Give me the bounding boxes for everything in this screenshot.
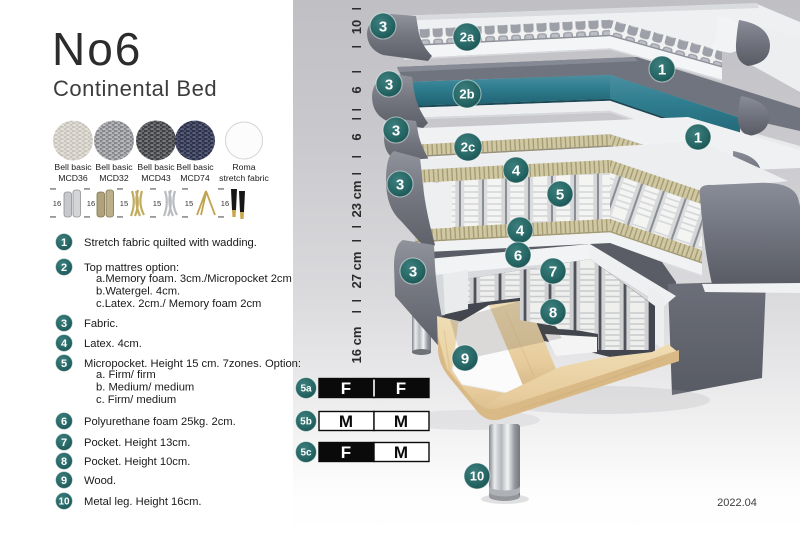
svg-text:8: 8 bbox=[549, 304, 557, 321]
svg-text:16: 16 bbox=[53, 199, 61, 208]
svg-text:16: 16 bbox=[87, 199, 95, 208]
svg-text:3: 3 bbox=[61, 318, 67, 330]
svg-text:F: F bbox=[341, 443, 351, 462]
svg-text:No6: No6 bbox=[52, 23, 142, 75]
svg-text:a. Firm/ firm: a. Firm/ firm bbox=[96, 369, 156, 381]
svg-text:3: 3 bbox=[396, 176, 404, 193]
svg-text:F: F bbox=[396, 379, 406, 398]
svg-text:Continental Bed: Continental Bed bbox=[53, 76, 217, 101]
svg-text:16 cm: 16 cm bbox=[349, 327, 364, 364]
svg-text:M: M bbox=[394, 443, 408, 462]
svg-text:4: 4 bbox=[516, 222, 525, 239]
svg-text:Pocket. Height 13cm.: Pocket. Height 13cm. bbox=[84, 437, 190, 449]
svg-text:4: 4 bbox=[512, 162, 521, 179]
svg-text:10: 10 bbox=[470, 469, 484, 484]
svg-text:Metal leg. Height 16cm.: Metal leg. Height 16cm. bbox=[84, 496, 202, 508]
svg-text:8: 8 bbox=[61, 456, 67, 468]
svg-text:3: 3 bbox=[385, 76, 393, 93]
svg-text:6: 6 bbox=[349, 86, 364, 93]
svg-text:3: 3 bbox=[379, 18, 387, 35]
svg-text:2022.04: 2022.04 bbox=[717, 497, 757, 509]
svg-text:Latex. 4cm.: Latex. 4cm. bbox=[84, 338, 142, 350]
svg-text:c.Latex. 2cm./ Memory foam 2cm: c.Latex. 2cm./ Memory foam 2cm bbox=[96, 298, 261, 310]
svg-text:6: 6 bbox=[61, 416, 67, 428]
svg-text:4: 4 bbox=[61, 338, 68, 350]
svg-text:F: F bbox=[341, 379, 351, 398]
svg-text:M: M bbox=[339, 412, 353, 431]
svg-text:3: 3 bbox=[409, 263, 417, 280]
svg-text:Roma: Roma bbox=[232, 162, 255, 172]
svg-text:Fabric.: Fabric. bbox=[84, 318, 118, 330]
svg-text:MCD74: MCD74 bbox=[180, 173, 210, 183]
svg-text:Pocket. Height 10cm.: Pocket. Height 10cm. bbox=[84, 456, 190, 468]
svg-text:5a: 5a bbox=[300, 384, 312, 395]
svg-text:MCD43: MCD43 bbox=[141, 173, 171, 183]
svg-text:Bell basic: Bell basic bbox=[137, 162, 175, 172]
svg-text:MCD36: MCD36 bbox=[58, 173, 88, 183]
svg-text:16: 16 bbox=[221, 199, 229, 208]
svg-text:10: 10 bbox=[58, 497, 70, 508]
svg-text:stretch fabric: stretch fabric bbox=[219, 173, 269, 183]
svg-text:1: 1 bbox=[694, 129, 702, 146]
svg-text:15: 15 bbox=[185, 199, 193, 208]
svg-text:7: 7 bbox=[61, 437, 67, 449]
svg-text:Bell basic: Bell basic bbox=[54, 162, 92, 172]
svg-text:1: 1 bbox=[658, 61, 666, 78]
svg-text:27 cm: 27 cm bbox=[349, 252, 364, 289]
svg-text:15: 15 bbox=[153, 199, 161, 208]
svg-text:23 cm: 23 cm bbox=[349, 181, 364, 218]
svg-text:Stretch fabric quilted with wa: Stretch fabric quilted with wadding. bbox=[84, 237, 257, 249]
svg-text:9: 9 bbox=[61, 475, 67, 487]
svg-text:2c: 2c bbox=[461, 140, 475, 155]
svg-text:c. Firm/ medium: c. Firm/ medium bbox=[96, 394, 176, 406]
svg-text:Bell basic: Bell basic bbox=[95, 162, 133, 172]
svg-text:b. Medium/ medium: b. Medium/ medium bbox=[96, 382, 194, 394]
svg-text:5: 5 bbox=[61, 358, 67, 370]
svg-text:2: 2 bbox=[61, 262, 67, 274]
svg-text:Polyurethane foam 25kg. 2cm.: Polyurethane foam 25kg. 2cm. bbox=[84, 416, 236, 428]
svg-text:5: 5 bbox=[556, 186, 564, 203]
svg-text:Wood.: Wood. bbox=[84, 475, 116, 487]
svg-text:9: 9 bbox=[461, 350, 469, 367]
svg-text:2b: 2b bbox=[459, 87, 474, 102]
svg-text:5c: 5c bbox=[300, 448, 312, 459]
svg-text:a.Memory foam. 3cm./Micropocke: a.Memory foam. 3cm./Micropocket 2cm bbox=[96, 273, 292, 285]
svg-text:5b: 5b bbox=[300, 417, 312, 428]
svg-text:b.Watergel. 4cm.: b.Watergel. 4cm. bbox=[96, 286, 180, 298]
svg-text:M: M bbox=[394, 412, 408, 431]
svg-text:2a: 2a bbox=[460, 30, 475, 45]
svg-text:1: 1 bbox=[61, 237, 67, 249]
svg-text:7: 7 bbox=[549, 263, 557, 280]
svg-text:Bell basic: Bell basic bbox=[176, 162, 214, 172]
svg-text:3: 3 bbox=[392, 122, 400, 139]
svg-text:6: 6 bbox=[514, 247, 522, 264]
svg-text:6: 6 bbox=[349, 133, 364, 140]
svg-text:15: 15 bbox=[120, 199, 128, 208]
svg-text:MCD32: MCD32 bbox=[99, 173, 129, 183]
svg-text:10: 10 bbox=[349, 20, 364, 34]
